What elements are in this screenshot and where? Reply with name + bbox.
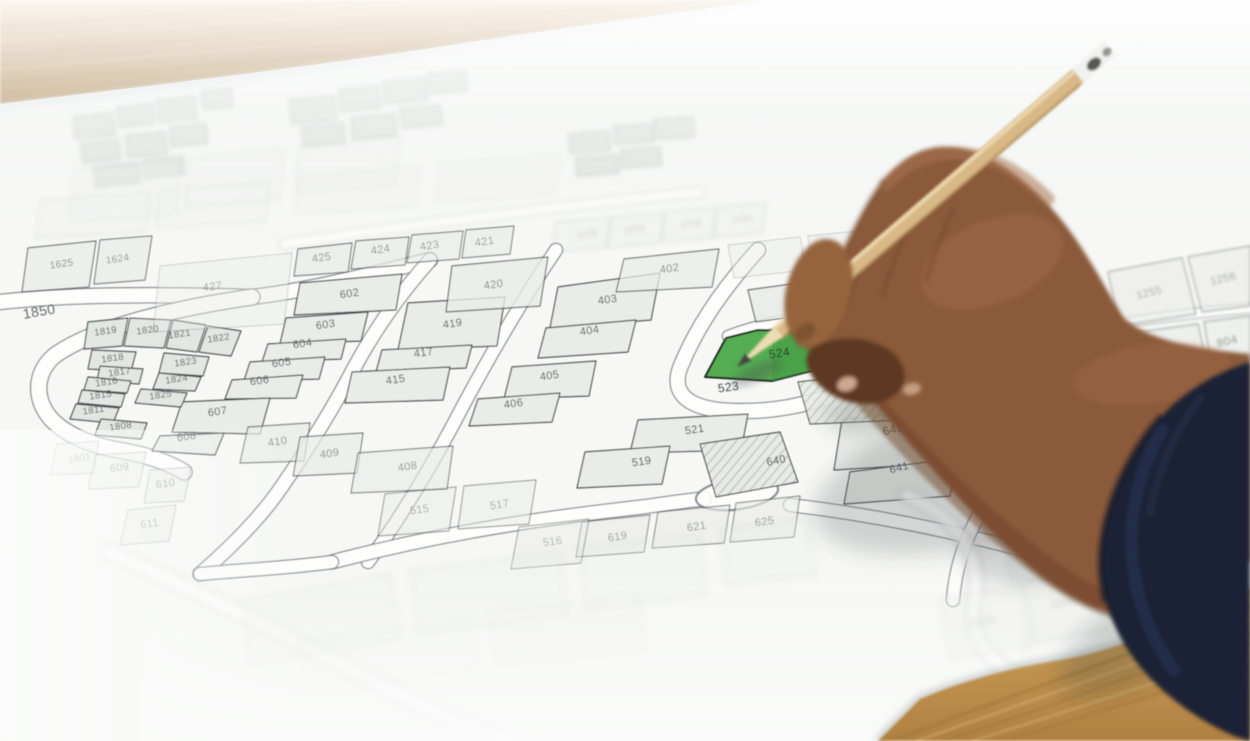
photo-cadastral-map-scene: 1075107610781080 60260360460560660760841… (0, 0, 1250, 741)
wash-top (0, 0, 1250, 250)
wash-bottom (140, 560, 1020, 741)
parcel-shape (153, 253, 292, 332)
cadastral-map-photo: 1075107610781080 60260360460560660760841… (0, 0, 1250, 741)
parcel-shape (577, 446, 670, 488)
